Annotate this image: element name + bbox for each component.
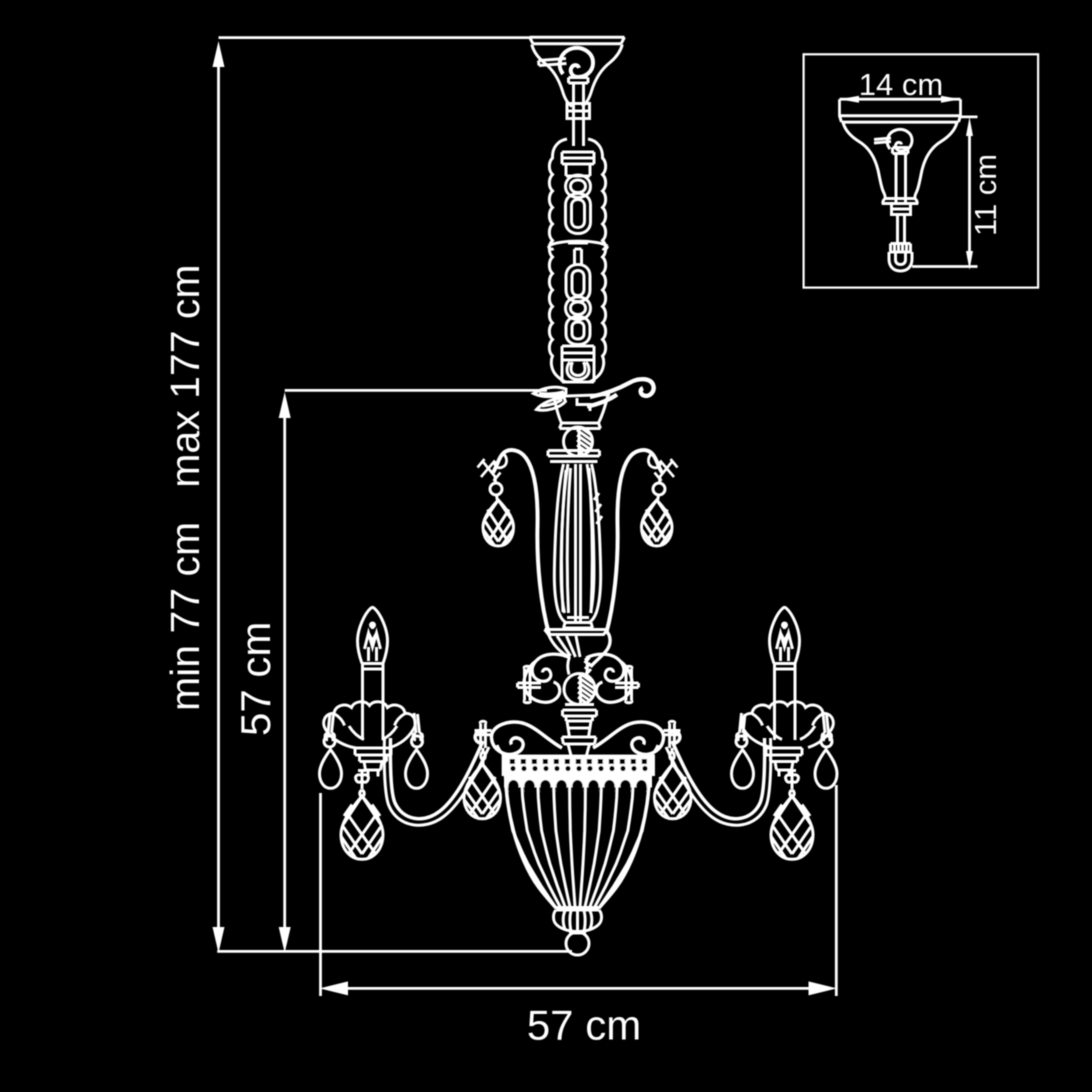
svg-text:57 cm: 57 cm [527,1002,641,1049]
svg-text:11 cm: 11 cm [968,154,1003,236]
svg-text:57 cm: 57 cm [232,622,279,736]
svg-text:min 77 cm max 177 cm: min 77 cm max 177 cm [162,264,208,711]
svg-text:14 cm: 14 cm [859,67,943,102]
